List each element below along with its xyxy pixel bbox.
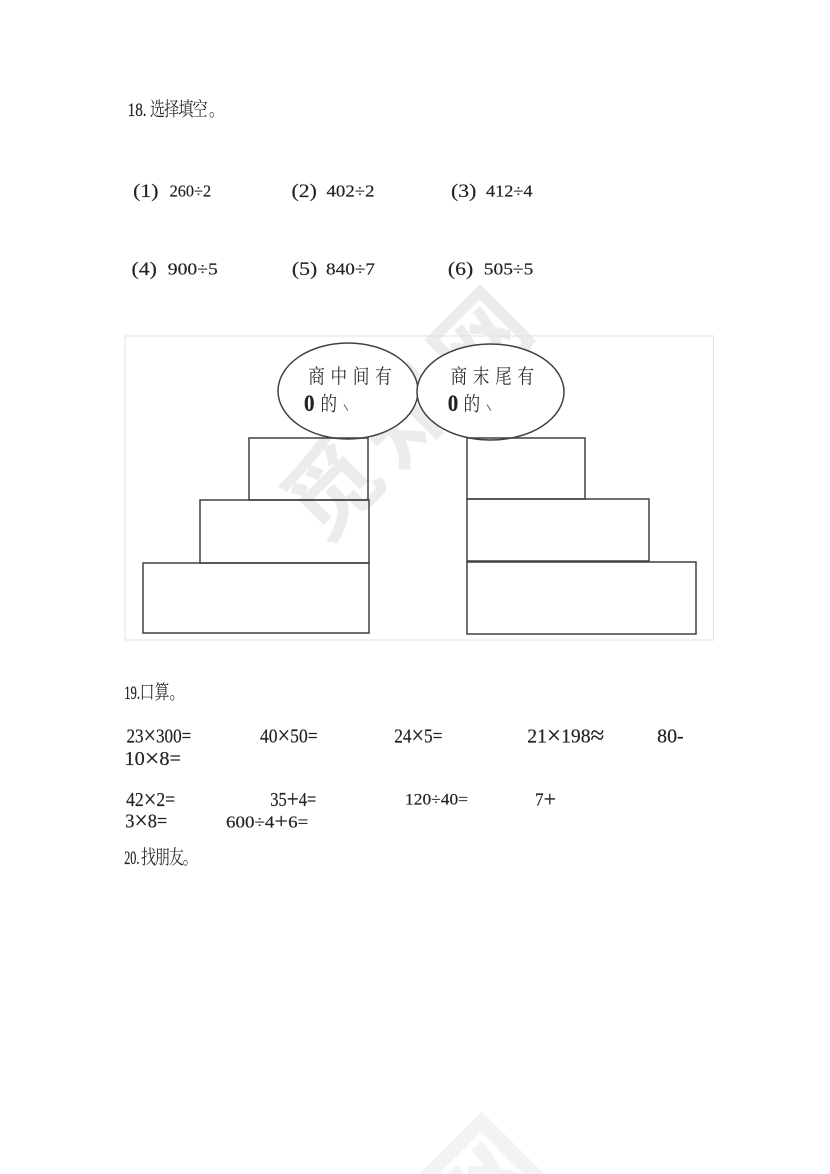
svg-text:(2): (2) <box>292 181 317 202</box>
svg-text:900÷5: 900÷5 <box>168 259 218 278</box>
svg-text:7+​: 7+​ <box>535 786 556 811</box>
svg-text:40×​50=: 40×​50= <box>260 721 318 750</box>
svg-text:(4): (4) <box>132 259 157 280</box>
svg-text:402÷2: 402÷2 <box>327 181 375 200</box>
svg-text:840÷7: 840÷7 <box>326 259 375 278</box>
svg-text:10×​8=: 10×​8= <box>125 743 181 772</box>
svg-text:(5): (5) <box>292 259 317 280</box>
svg-text:120÷40=: 120÷40= <box>405 792 468 809</box>
svg-text:505÷5: 505÷5 <box>484 259 534 278</box>
svg-text:80-: 80- <box>657 726 684 748</box>
svg-text:24×​5=: 24×​5= <box>394 721 442 750</box>
svg-text:(1): (1) <box>133 181 158 202</box>
svg-text:21×​198≈​: 21×​198≈​ <box>527 721 604 750</box>
svg-text:600÷4+​6=: 600÷4+​6= <box>226 809 308 833</box>
svg-text:(6): (6) <box>448 259 473 280</box>
svg-text:260÷2: 260÷2 <box>170 181 212 200</box>
svg-text:3×​8=: 3×​8= <box>125 808 167 835</box>
svg-text:412÷4: 412÷4 <box>486 181 533 200</box>
svg-text:42×​2=: 42×​2= <box>126 784 175 813</box>
svg-text:19.: 19. <box>124 683 140 704</box>
svg-text:18.: 18. <box>128 100 147 121</box>
svg-text:20.: 20. <box>124 848 139 869</box>
svg-text:(3): (3) <box>451 181 476 202</box>
svg-text:0: 0 <box>448 391 459 416</box>
svg-text:0: 0 <box>304 391 315 416</box>
